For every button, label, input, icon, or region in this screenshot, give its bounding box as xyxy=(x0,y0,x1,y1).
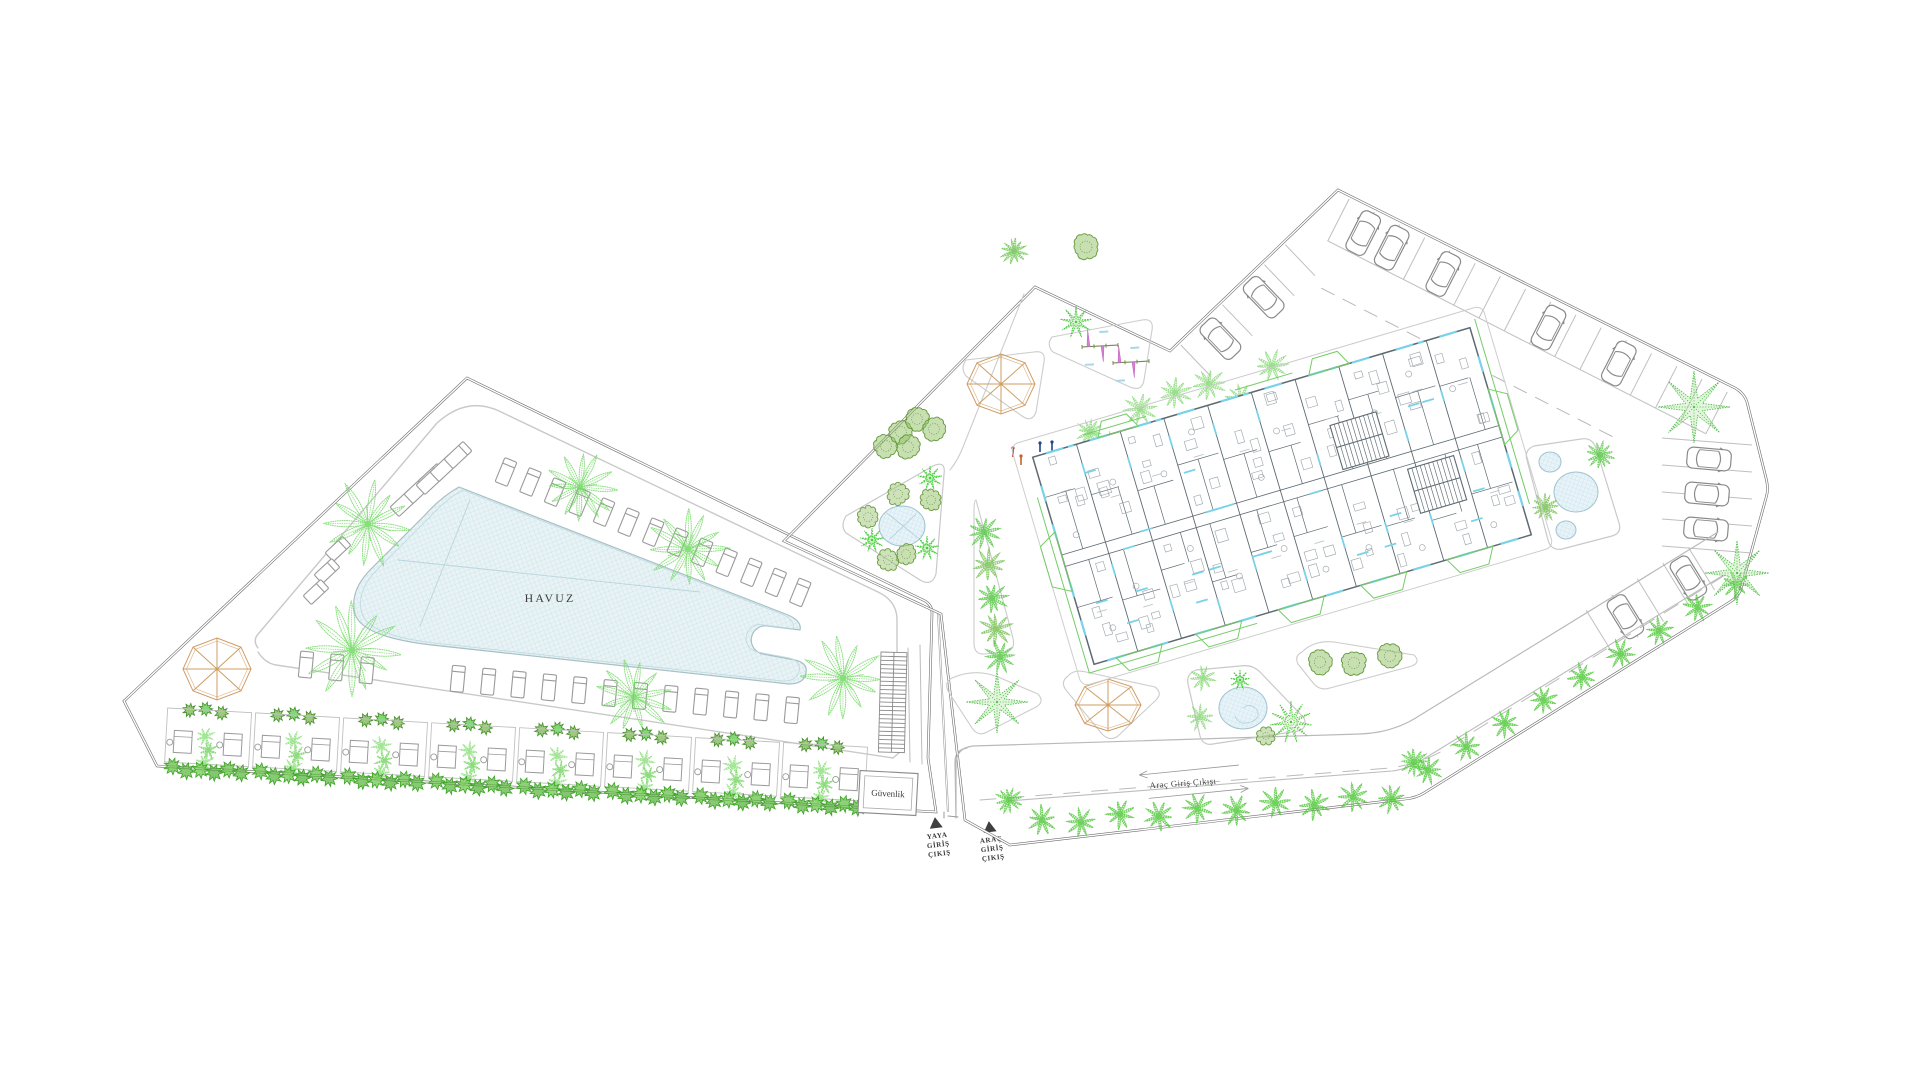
svg-text:Güvenlik: Güvenlik xyxy=(871,788,905,800)
svg-text:HAVUZ: HAVUZ xyxy=(525,591,576,605)
